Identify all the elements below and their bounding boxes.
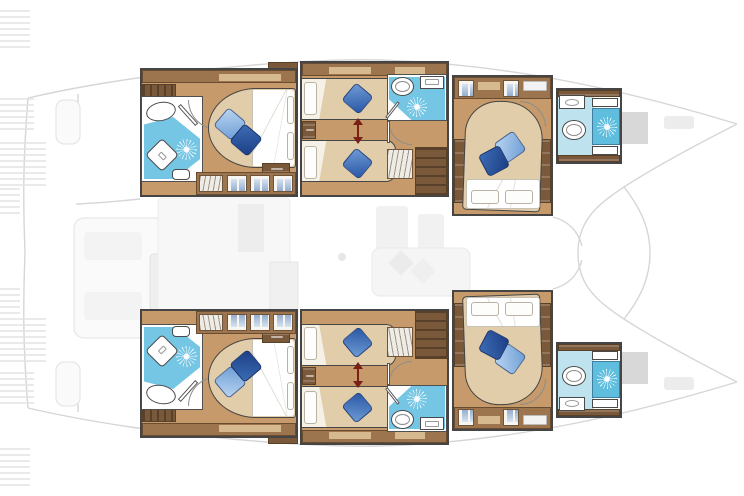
top-shelf	[142, 423, 296, 436]
shelf	[478, 416, 500, 424]
hanger-locker	[387, 327, 413, 357]
toilet-icon	[172, 326, 190, 337]
single-bed	[302, 386, 396, 428]
bed-convert-arrow	[352, 362, 364, 388]
hull-starboard	[0, 10, 744, 496]
handle	[306, 375, 314, 377]
toilet-icon	[562, 366, 586, 386]
hanger-locker	[199, 314, 223, 331]
shower-drain-icon	[407, 389, 427, 409]
forward-cabin	[452, 290, 553, 431]
top-shelf	[454, 407, 551, 429]
head-pillow	[505, 302, 533, 316]
garment-locker	[503, 409, 519, 426]
handle	[271, 336, 283, 338]
shower-drain-icon	[597, 369, 617, 389]
companionway-stairs	[415, 311, 447, 359]
single-bed	[302, 324, 396, 366]
bow-bathroom	[556, 342, 622, 418]
sink-counter-icon	[559, 397, 585, 411]
toilet-seat	[395, 414, 410, 425]
vanity	[523, 415, 547, 425]
double-bed	[208, 338, 296, 418]
basin	[425, 421, 439, 427]
drain	[158, 345, 167, 354]
wardrobe	[196, 311, 296, 334]
door-leaf	[385, 387, 400, 405]
shelf	[395, 432, 425, 439]
shelf	[219, 425, 281, 432]
deco-pillow	[341, 391, 373, 423]
aft-cabin	[140, 309, 298, 438]
sink-counter-icon	[420, 417, 444, 430]
deco-pillow	[341, 326, 373, 358]
mid-cabin	[300, 309, 449, 445]
head-pillow	[287, 382, 294, 410]
arrow-down	[353, 362, 363, 369]
garment-locker	[273, 314, 293, 331]
garment-locker	[458, 409, 474, 426]
garment-locker	[227, 314, 247, 331]
shower-stall	[592, 361, 620, 398]
catamaran-floor-plan	[0, 0, 744, 496]
bed-pillow	[304, 391, 317, 424]
wall-band	[558, 344, 620, 351]
mid-bathroom	[387, 385, 447, 432]
toilet-icon	[391, 410, 414, 429]
nightstand	[302, 367, 316, 385]
bed-pillow	[304, 327, 317, 360]
shelf	[329, 432, 371, 439]
basin	[565, 400, 579, 407]
head-pillow	[287, 346, 294, 374]
garment-locker	[250, 314, 270, 331]
shower-drain-icon	[176, 346, 197, 367]
toilet-seat	[566, 370, 582, 382]
arrow-shaft	[357, 367, 359, 383]
shelf	[592, 399, 618, 408]
door-leaf	[387, 363, 390, 385]
shelf	[592, 351, 618, 360]
bed-duvet	[466, 297, 540, 327]
head-pillow	[471, 302, 499, 316]
